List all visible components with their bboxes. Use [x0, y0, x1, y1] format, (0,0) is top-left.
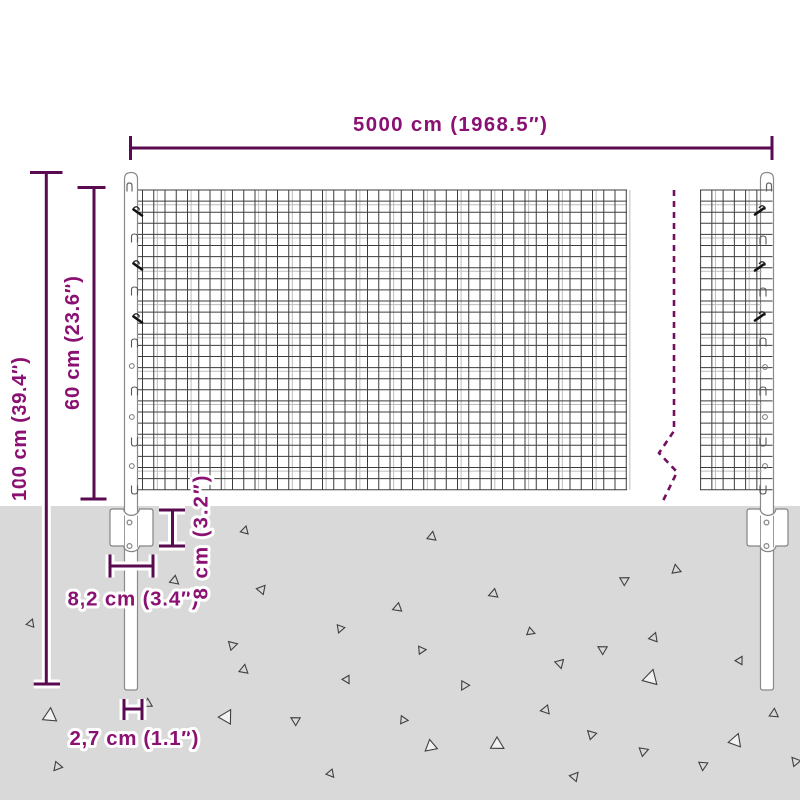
svg-text:2,7 cm (1.1″): 2,7 cm (1.1″) — [70, 727, 199, 750]
svg-text:5000 cm (1968.5″): 5000 cm (1968.5″) — [353, 113, 547, 136]
svg-text:8,2 cm (3.4″): 8,2 cm (3.4″) — [68, 588, 199, 611]
svg-text:60 cm (23.6″): 60 cm (23.6″) — [61, 276, 84, 410]
svg-text:8 cm (3.2″): 8 cm (3.2″) — [190, 476, 213, 600]
svg-text:100 cm (39.4″): 100 cm (39.4″) — [8, 357, 31, 501]
